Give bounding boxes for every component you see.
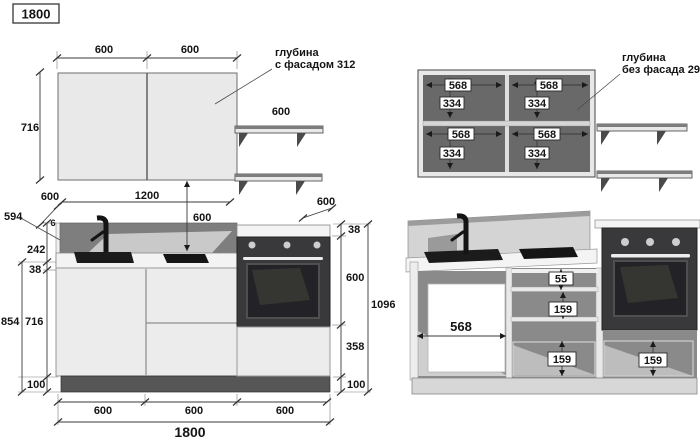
dim-total-width: 1800: [174, 424, 205, 439]
cell2-width: 568: [540, 80, 558, 92]
base-run-open-view: 568 55 159 159 159: [406, 211, 700, 394]
dim-cabinet-height: 716: [25, 316, 43, 328]
cell2-height: 334: [528, 98, 547, 110]
cooktop: [163, 254, 209, 263]
kitchen-drawing-sheet: 1800 600 600 716 глубина с фасадом 312 6…: [0, 0, 700, 439]
oven-knob: [249, 242, 256, 249]
dim-bottom-1: 600: [94, 405, 112, 417]
shelf-bracket: [239, 181, 248, 195]
shelf-bracket: [296, 181, 305, 195]
drawer-shelf: [511, 287, 598, 292]
side-panel-left: [410, 262, 418, 380]
oven-knob: [646, 238, 654, 246]
dim-wall-span: 1200: [135, 190, 159, 202]
cooktop: [519, 247, 578, 259]
dim-depth-top: 600: [41, 191, 59, 203]
dim-worktop-depth: 594: [4, 211, 23, 223]
wall-shelf-upper: [235, 126, 323, 147]
cell4-height: 334: [528, 148, 547, 160]
wall-shelf-upper: [597, 124, 687, 145]
cell1-width: 568: [449, 80, 467, 92]
cell4-width: 568: [538, 129, 556, 141]
dim-counter-thickness-right: 38: [348, 224, 360, 236]
shelf-bracket: [297, 133, 306, 147]
dim-drawer-bottom: 159: [553, 354, 571, 366]
oven-handle: [611, 254, 690, 258]
scale-label: 1800: [22, 7, 51, 22]
dim-wall-to-counter: 600: [193, 212, 211, 224]
shelf-bracket: [657, 131, 666, 145]
note-depth-with-facade-2: с фасадом 312: [275, 59, 355, 71]
dim-backsplash-height: 242: [27, 244, 45, 256]
wall-shelf-lower: [597, 171, 692, 192]
oven-knob: [284, 242, 291, 249]
oven-knob: [314, 242, 321, 249]
cooker-top: [237, 225, 330, 237]
dim-under-oven: 358: [346, 341, 364, 353]
oven-handle: [243, 257, 323, 260]
scale-box: 1800: [13, 4, 59, 23]
shelf-bracket: [601, 178, 610, 192]
shelf-bracket: [239, 133, 248, 147]
wall-cabinets-open-view: 568 334 568 334 568 334 568 334 глубина …: [418, 52, 700, 192]
backsplash-highlight: [88, 231, 232, 253]
dim-counter-thickness-left: 38: [29, 264, 41, 276]
dim-door-left: 600: [95, 44, 113, 56]
wall-cabinets-closed-view: 600 600 716 глубина с фасадом 312 600: [21, 44, 356, 195]
note-depth-with-facade-1: глубина: [275, 47, 319, 59]
wall-shelf-lower: [235, 174, 322, 195]
oven-knob: [621, 238, 629, 246]
dim-bottom-2: 600: [185, 405, 203, 417]
dim-oven-height: 600: [346, 272, 364, 284]
plinth: [412, 378, 697, 394]
dim-shelf-width: 600: [272, 106, 290, 118]
dim-drawer-under-oven: 159: [644, 355, 662, 367]
built-in-oven-unit: [595, 220, 700, 330]
dim-plinth-left: 100: [27, 379, 45, 391]
dim-gap: 6: [50, 218, 55, 229]
dim-bottom-3: 600: [276, 405, 294, 417]
cooker-base: [237, 327, 330, 376]
note-depth-without-facade-1: глубина: [622, 52, 666, 64]
dim-door-right: 600: [181, 44, 199, 56]
cell1-height: 334: [443, 98, 462, 110]
oven-glass-reflection: [620, 265, 678, 303]
note-depth-without-facade-2: без фасада 296: [622, 64, 700, 76]
cell3-width: 568: [452, 129, 470, 141]
drawer-shelf: [511, 317, 598, 322]
plinth: [61, 376, 330, 392]
shelf-bracket: [601, 131, 610, 145]
cell3-height: 334: [443, 148, 462, 160]
sink: [74, 252, 134, 263]
dim-total-height: 1096: [371, 299, 395, 311]
dim-cabinet-inner-width: 568: [450, 319, 472, 334]
base-run-closed-view: 600 1200 600 600 38 600 358 100 1096 594…: [1, 181, 395, 439]
partition: [506, 268, 512, 378]
middle-shelf: [423, 121, 590, 126]
dim-plinth-right: 100: [347, 379, 365, 391]
dim-drawer-top: 55: [555, 274, 567, 286]
dim-cooker-width: 600: [317, 196, 335, 208]
cooker-unit: [237, 225, 330, 376]
cooker-top: [595, 220, 700, 228]
dim-drawer-mid: 159: [554, 304, 572, 316]
oven-knob: [672, 238, 680, 246]
oven-glass-reflection: [252, 268, 310, 305]
dim-height: 716: [21, 122, 39, 134]
dim-base-height-total: 854: [1, 316, 20, 328]
shelf-bracket: [659, 178, 668, 192]
